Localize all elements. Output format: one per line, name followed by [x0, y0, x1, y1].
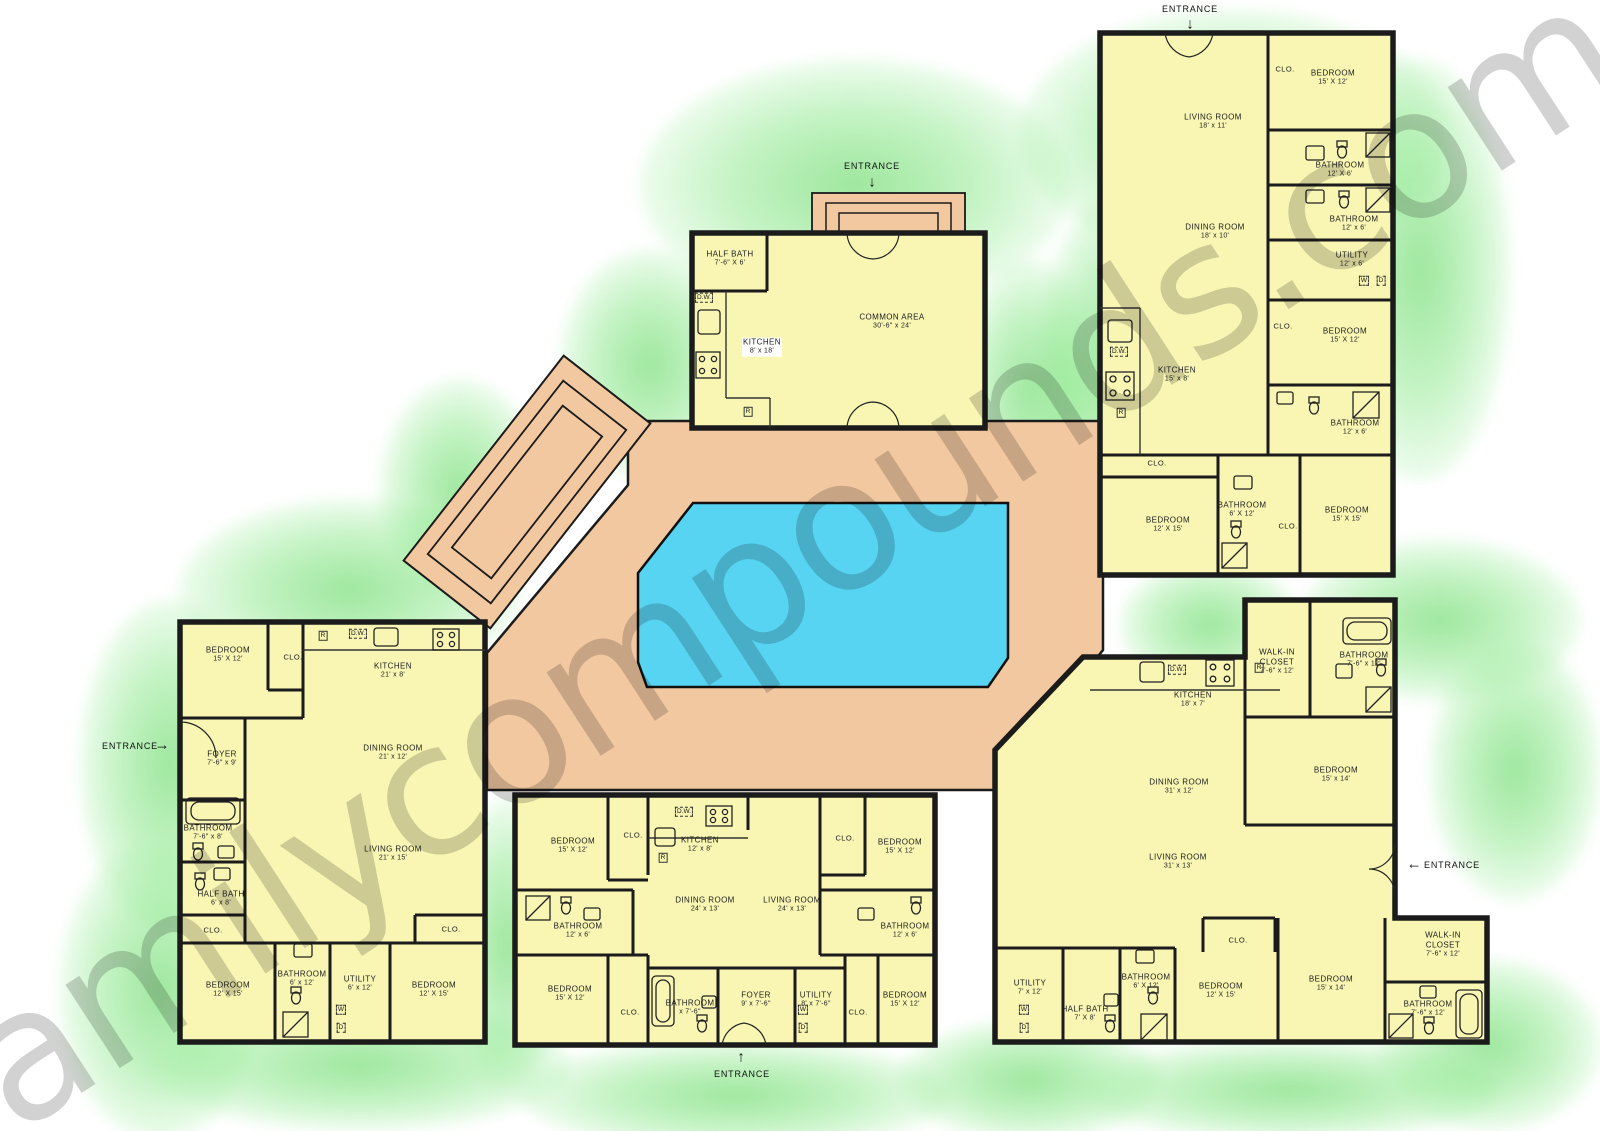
dryer-label: D	[1377, 276, 1386, 286]
entrance-label-common: ENTRANCE	[844, 161, 900, 171]
room-label-bathroom: BATHROOM12' x 6'	[881, 922, 930, 941]
range-label: R	[659, 853, 668, 863]
room-label-bathroom: BATHROOM7'-6" x 12'	[1403, 1000, 1453, 1019]
entrance-label-east: ENTRANCE	[1424, 860, 1480, 870]
room-label-bedroom: BEDROOM12' X 15'	[206, 981, 250, 1000]
dishwasher-label: D.W.	[695, 293, 713, 303]
washer-label: W	[1359, 276, 1369, 286]
arrow-left-icon: ←	[1407, 856, 1422, 873]
closet-label: CLO.	[441, 925, 460, 934]
dishwasher-label: D.W.	[1110, 347, 1128, 357]
room-label-utility: UTILITY6' x 12'	[344, 975, 377, 994]
building-northeast	[1100, 33, 1393, 575]
entrance-label-northeast: ENTRANCE	[1162, 4, 1218, 14]
arrow-down-icon: ↓	[1186, 16, 1194, 33]
room-label-kitchen: KITCHEN8' x 18'	[742, 338, 782, 357]
room-label-bedroom: BEDROOM15' X 12'	[206, 646, 250, 665]
dryer-label: D	[799, 1023, 808, 1033]
closet-label: CLO.	[1275, 65, 1294, 74]
room-label-dining-room: DINING ROOM31' x 12'	[1149, 778, 1209, 797]
room-label-dining-room: DINING ROOM21' x 12'	[363, 744, 423, 763]
closet-label: CLO.	[1278, 522, 1297, 531]
washer-label: W	[798, 1005, 808, 1015]
room-label-living-room: LIVING ROOM31' x 13'	[1149, 853, 1207, 872]
room-label-bedroom: BEDROOM15' X 12'	[551, 837, 595, 856]
dryer-label: D	[1020, 1023, 1029, 1033]
room-label-living-room: LIVING ROOM18' x 11'	[1184, 113, 1242, 132]
room-label-bathroom: BATHROOM6' X 12'	[1218, 501, 1267, 520]
room-label-bedroom: BEDROOM15' X 12'	[548, 985, 592, 1004]
room-label-bathroom: BATHROOM12' X 6'	[1316, 161, 1365, 180]
closet-label: CLO.	[203, 926, 222, 935]
room-label-bathroom: BATHROOM12' x 6'	[1330, 215, 1379, 234]
room-label-utility: UTILITY12' x 6'	[1336, 251, 1369, 270]
closet-label: CLO.	[283, 653, 302, 662]
room-label-dining-room: DINING ROOM24' x 13'	[675, 896, 735, 915]
dishwasher-label: D.W.	[675, 807, 693, 817]
room-label-common-area: COMMON AREA30'-6" x 24'	[859, 313, 924, 332]
closet-label: CLO.	[623, 831, 642, 840]
room-label-bathroom: BATHROOM6' x 12'	[277, 970, 327, 989]
range-label: R	[744, 407, 753, 417]
room-label-bedroom: BEDROOM15' x 14'	[1309, 975, 1353, 994]
room-label-half-bath: HALF BATH7'-6" X 6'	[705, 250, 755, 269]
building-northeast-outline	[1100, 33, 1393, 575]
room-label-kitchen: KITCHEN18' x 7'	[1174, 691, 1212, 710]
room-label-bedroom: BEDROOM12' X 15'	[1146, 516, 1190, 535]
range-label: R	[1117, 408, 1126, 418]
room-label-bathroom: BATHROOM12' x 6'	[1331, 419, 1380, 438]
room-label-half-bath: HALF BATH7' X 8'	[1060, 1005, 1110, 1024]
room-label-foyer: FOYER9' x 7'-6"	[741, 991, 771, 1010]
floor-plan-canvas: LIVING ROOM18' x 11' DINING ROOM18' x 10…	[0, 0, 1600, 1131]
washer-label: W	[1019, 1005, 1029, 1015]
room-label-kitchen: KITCHEN15' x 8'	[1158, 366, 1196, 385]
room-label-living-room: LIVING ROOM21' x 15'	[364, 845, 422, 864]
closet-label: CLO.	[1147, 459, 1166, 468]
closet-label: CLO.	[848, 1008, 867, 1017]
room-label-foyer: FOYER7'-6" x 9'	[207, 750, 237, 769]
room-label-bedroom: BEDROOM15' x 14'	[1314, 766, 1358, 785]
room-label-living-room: LIVING ROOM24' x 13'	[763, 896, 821, 915]
room-label-bathroom: BATHROOM6' X 12'	[1121, 973, 1171, 992]
room-label-kitchen: KITCHEN21' x 8'	[374, 662, 412, 681]
room-label-bedroom: BEDROOM15' X 12'	[1311, 69, 1355, 88]
closet-label: CLO.	[620, 1008, 639, 1017]
room-label-utility: UTILITY7' x 12'	[1014, 979, 1047, 998]
arrow-right-icon: →	[155, 737, 170, 754]
range-label: R	[1255, 663, 1264, 673]
room-label-bathroom: BATHROOMx 7'-6"	[665, 999, 715, 1018]
closet-label: CLO.	[835, 834, 854, 843]
entrance-label-south: ENTRANCE	[714, 1069, 770, 1079]
arrow-up-icon: ↑	[737, 1049, 745, 1066]
range-label: R	[319, 631, 328, 641]
closet-label: CLO.	[1228, 936, 1247, 945]
room-label-bedroom: BEDROOM12' X 15'	[1199, 982, 1243, 1001]
common-entry-steps	[812, 193, 965, 233]
entrance-label-west: ENTRANCE	[102, 741, 158, 751]
room-label-bathroom: BATHROOM7'-6" x 8'	[184, 824, 233, 843]
dishwasher-label: D.W.	[349, 629, 367, 639]
room-label-bedroom: BEDROOM15' X 12'	[1323, 327, 1367, 346]
closet-label: CLO.	[1273, 322, 1292, 331]
dishwasher-label: D.W.	[1168, 665, 1186, 675]
dryer-label: D	[337, 1023, 346, 1033]
room-label-bedroom: BEDROOM15' X 15'	[1325, 506, 1369, 525]
room-label-bedroom: BEDROOM12' X 15'	[412, 981, 456, 1000]
room-label-half-bath: HALF BATH6' x 8'	[197, 890, 244, 909]
room-label-bathroom: BATHROOM12' x 6'	[554, 922, 603, 941]
room-label-bedroom: BEDROOM15' X 12'	[878, 838, 922, 857]
room-label-kitchen: KITCHEN12' x 8'	[681, 836, 719, 855]
room-label-dining-room: DINING ROOM18' x 10'	[1185, 223, 1245, 242]
room-label-bathroom: BATHROOM7'-6" x 12'	[1339, 651, 1389, 670]
arrow-down-icon: ↓	[868, 174, 876, 191]
room-label-bedroom: BEDROOM15' X 12'	[883, 991, 927, 1010]
swimming-pool	[638, 503, 1008, 687]
room-label-walk-in-closet: WALK-IN CLOSET7'-6" x 12'	[1418, 931, 1468, 960]
washer-label: W	[336, 1005, 346, 1015]
